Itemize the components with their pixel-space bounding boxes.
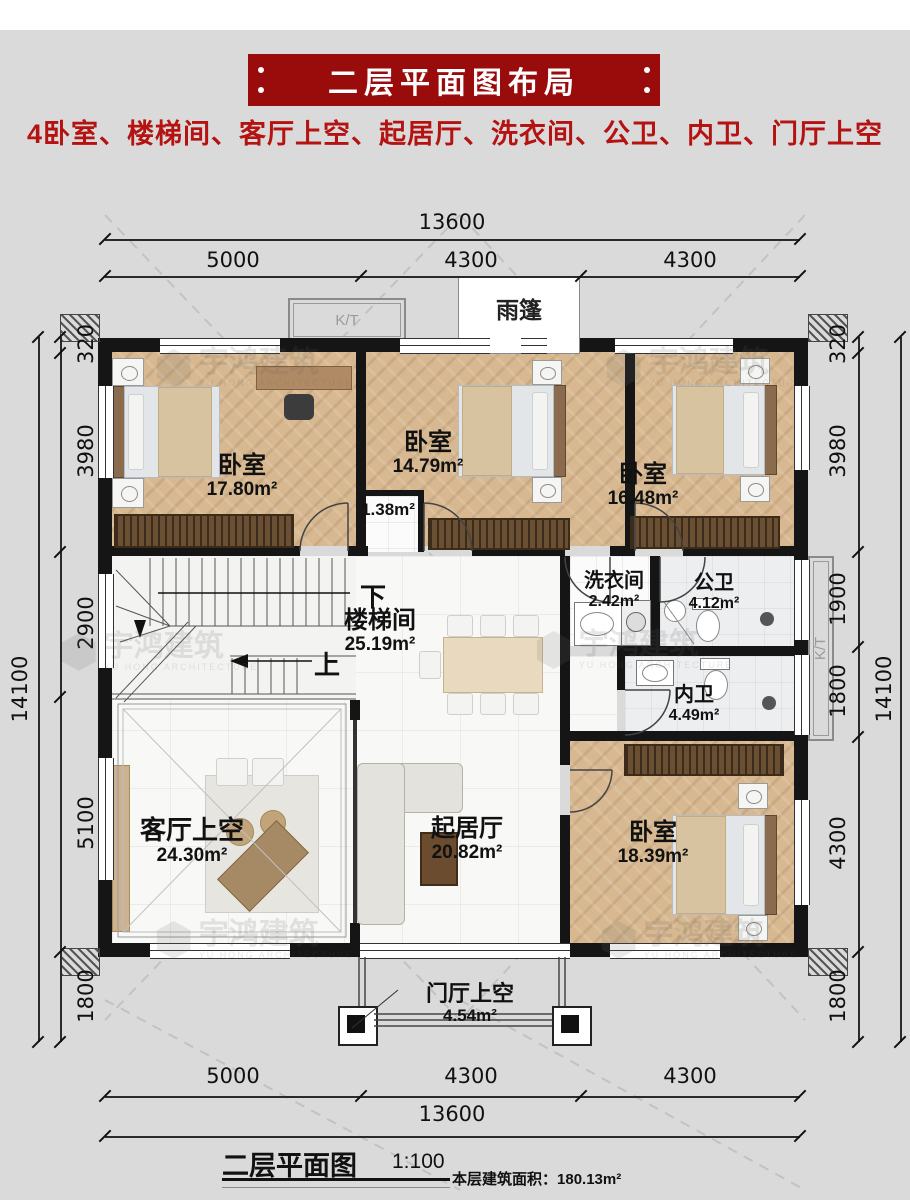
bed-blanket bbox=[676, 386, 724, 474]
dim-right-seg: 1800 bbox=[826, 646, 850, 736]
wardrobe bbox=[428, 518, 570, 550]
dim-top-seg: 4300 bbox=[630, 248, 750, 272]
dim-top-total: 13600 bbox=[382, 210, 522, 234]
sink bbox=[642, 664, 668, 682]
dim-line bbox=[105, 1096, 800, 1098]
page-title: 二层平面图布局 bbox=[328, 58, 580, 102]
banner-dot bbox=[258, 87, 264, 93]
room-label-bedroom1: 卧室 17.80m² bbox=[207, 453, 278, 502]
porch-column bbox=[552, 1006, 592, 1046]
laundry-sink bbox=[580, 612, 614, 636]
dim-line bbox=[858, 337, 860, 1042]
window bbox=[794, 560, 810, 640]
bed-blanket bbox=[462, 386, 512, 476]
room-label-porch-void: 门厅上空 4.54m² bbox=[426, 982, 514, 1027]
room-label-private-bath: 内卫 4.49m² bbox=[669, 684, 720, 725]
wall-privbath-west bbox=[617, 656, 625, 690]
window bbox=[150, 943, 290, 959]
desk bbox=[256, 366, 352, 390]
window bbox=[794, 655, 810, 735]
dim-left-seg: 5100 bbox=[74, 778, 98, 868]
dim-left-seg: 3980 bbox=[74, 406, 98, 496]
wardrobe bbox=[114, 514, 294, 548]
room-label-bedroom3: 卧室 16.48m² bbox=[608, 462, 679, 511]
room-label-stairwell: 楼梯间 25.19m² bbox=[344, 608, 416, 657]
kt-label: K/T bbox=[335, 312, 358, 329]
dim-right-seg: 320 bbox=[826, 299, 850, 389]
dim-line bbox=[38, 337, 40, 1042]
dim-line bbox=[105, 1136, 800, 1138]
bed-pillow bbox=[743, 824, 759, 906]
window bbox=[160, 338, 280, 354]
washer-drum bbox=[626, 612, 646, 632]
dining-chair bbox=[480, 693, 506, 715]
cushion bbox=[216, 758, 248, 786]
dim-right-seg: 1900 bbox=[826, 554, 850, 644]
dim-line bbox=[105, 239, 800, 241]
wall-laundry-bath bbox=[650, 556, 660, 646]
dim-line bbox=[900, 337, 902, 1042]
room-label-public-bath: 公卫 4.12m² bbox=[689, 572, 740, 613]
toilet-bowl bbox=[696, 610, 720, 642]
wall-hall-east bbox=[560, 815, 570, 943]
floor-area-note: 本层建筑面积：180.13m² bbox=[452, 1168, 621, 1189]
dim-bottom-seg: 4300 bbox=[630, 1064, 750, 1088]
nightstand bbox=[738, 915, 768, 941]
dim-left-seg: 2900 bbox=[74, 578, 98, 668]
dining-chair bbox=[419, 651, 441, 679]
room-label-bedroom4: 卧室 18.39m² bbox=[618, 820, 689, 869]
dim-left-seg: 1800 bbox=[74, 951, 98, 1041]
nightstand bbox=[740, 358, 770, 384]
dining-chair bbox=[447, 615, 473, 637]
sofa bbox=[357, 763, 405, 925]
shower-head bbox=[760, 612, 774, 626]
dim-line bbox=[60, 337, 62, 1042]
window bbox=[521, 338, 547, 354]
wall-closet bbox=[418, 496, 424, 552]
window bbox=[794, 800, 810, 905]
banner-dot bbox=[644, 67, 650, 73]
dining-chair bbox=[513, 615, 539, 637]
title-underline bbox=[222, 1178, 450, 1188]
window bbox=[400, 338, 490, 354]
room-label-living-void: 客厅上空 24.30m² bbox=[140, 816, 244, 867]
page-subtitle: 4卧室、楼梯间、客厅上空、起居厅、洗衣间、公卫、内卫、门厅上空 bbox=[0, 112, 910, 151]
dim-bottom-seg: 5000 bbox=[173, 1064, 293, 1088]
dining-table bbox=[443, 637, 543, 693]
dim-top-seg: 5000 bbox=[173, 248, 293, 272]
dim-top-seg: 4300 bbox=[411, 248, 531, 272]
nightstand bbox=[112, 358, 144, 386]
dim-right-seg: 4300 bbox=[826, 798, 850, 888]
floor-plan-page: 二层平面图布局 4卧室、楼梯间、客厅上空、起居厅、洗衣间、公卫、内卫、门厅上空 bbox=[0, 0, 910, 1200]
porch-opening bbox=[360, 943, 570, 959]
dim-line bbox=[105, 276, 800, 278]
window bbox=[610, 943, 720, 959]
bed-blanket bbox=[158, 387, 212, 477]
window bbox=[98, 758, 114, 880]
window bbox=[615, 338, 733, 354]
sink bbox=[664, 600, 686, 622]
wall-closet bbox=[356, 490, 424, 496]
bed-headboard bbox=[763, 385, 777, 475]
stair-down-label: 下 bbox=[360, 577, 386, 614]
dining-chair bbox=[480, 615, 506, 637]
window bbox=[794, 386, 810, 470]
void-divider-post bbox=[350, 923, 360, 943]
desk-chair bbox=[284, 394, 314, 420]
shower-head bbox=[762, 696, 776, 710]
dining-chair bbox=[447, 693, 473, 715]
nightstand bbox=[532, 360, 562, 385]
nightstand bbox=[112, 478, 144, 508]
bed-pillow bbox=[532, 392, 548, 470]
porch-column bbox=[338, 1006, 378, 1046]
dining-chair bbox=[513, 693, 539, 715]
wardrobe bbox=[630, 516, 780, 549]
tv-cabinet bbox=[112, 765, 130, 932]
room-label-laundry: 洗衣间 2.42m² bbox=[584, 570, 644, 611]
bed-headboard bbox=[552, 385, 566, 477]
stair-up-label: 上 bbox=[314, 645, 340, 682]
wall-br1-br2 bbox=[356, 352, 366, 552]
bed-pillow bbox=[128, 394, 144, 470]
wall-bath-split bbox=[617, 646, 794, 656]
wall-privbath-br4 bbox=[560, 731, 794, 741]
window bbox=[98, 574, 114, 668]
void-divider-post bbox=[350, 700, 360, 720]
dim-left-total: 14100 bbox=[8, 634, 32, 744]
room-label-family-room: 起居厅 20.82m² bbox=[431, 816, 503, 865]
bed-pillow bbox=[743, 392, 759, 468]
banner-dot bbox=[644, 87, 650, 93]
dim-bottom-total: 13600 bbox=[382, 1102, 522, 1126]
room-label-closet: 1.38m² bbox=[361, 500, 415, 520]
dim-right-seg: 1800 bbox=[826, 951, 850, 1041]
window bbox=[98, 386, 114, 478]
dim-right-total: 14100 bbox=[872, 634, 896, 744]
cushion bbox=[252, 758, 284, 786]
balcony-top: K/T bbox=[288, 298, 406, 342]
nightstand bbox=[740, 476, 770, 502]
bed-headboard bbox=[763, 815, 777, 915]
title-banner: 二层平面图布局 bbox=[248, 54, 660, 106]
dim-left-seg: 320 bbox=[74, 299, 98, 389]
dim-bottom-seg: 4300 bbox=[411, 1064, 531, 1088]
canopy-label: 雨篷 bbox=[496, 291, 542, 325]
wardrobe bbox=[624, 744, 784, 776]
nightstand bbox=[532, 477, 562, 503]
dim-right-seg: 3980 bbox=[826, 406, 850, 496]
wall-mid-h bbox=[348, 546, 368, 556]
toilet-tank bbox=[700, 658, 730, 670]
drawing-scale: 1:100 bbox=[392, 1150, 445, 1174]
room-label-bedroom2: 卧室 14.79m² bbox=[393, 430, 464, 479]
banner-dot bbox=[258, 67, 264, 73]
nightstand bbox=[738, 783, 768, 809]
